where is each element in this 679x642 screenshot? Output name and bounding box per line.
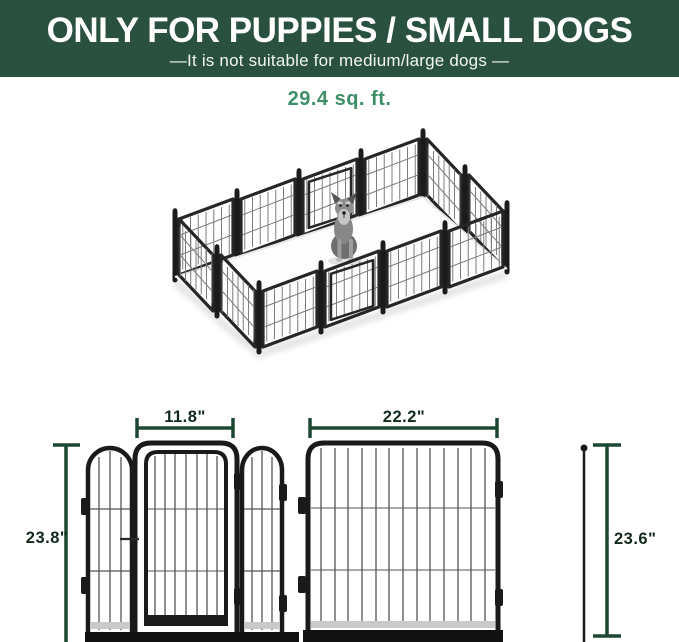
- door-height-dimension: 23.8": [26, 445, 80, 642]
- playpen-illustration: [130, 115, 570, 395]
- door-panel: [120, 443, 242, 642]
- base-bar: [303, 630, 503, 642]
- door-width-label: 11.8": [164, 408, 206, 426]
- dog-nose: [342, 211, 345, 214]
- panel-height-dimension: 23.6": [593, 445, 656, 636]
- narrow-panel-right: [242, 448, 287, 642]
- connector-tab: [81, 498, 89, 515]
- dimension-diagram: 11.8" 23.8": [0, 400, 679, 642]
- narrow-panel-left: [81, 448, 132, 642]
- connector-tab: [279, 484, 287, 501]
- panel-section-diagram: 22.2": [298, 408, 656, 642]
- door-section-diagram: 11.8" 23.8": [26, 408, 299, 642]
- door-width-dimension: 11.8": [137, 408, 233, 438]
- banner-title: ONLY FOR PUPPIES / SMALL DOGS: [0, 0, 679, 50]
- connector-tab: [81, 577, 89, 594]
- banner-subtitle: —It is not suitable for medium/large dog…: [0, 50, 679, 71]
- panel-width-label: 22.2": [383, 408, 425, 426]
- base-bar: [85, 632, 299, 642]
- area-size-label: 29.4 sq. ft.: [0, 88, 679, 111]
- panel-side-view: [581, 445, 588, 642]
- connector-tab: [298, 497, 306, 514]
- wide-panel: [298, 443, 503, 642]
- panel-height-label: 23.6": [614, 530, 656, 548]
- header-banner: ONLY FOR PUPPIES / SMALL DOGS —It is not…: [0, 0, 679, 77]
- product-infographic: ONLY FOR PUPPIES / SMALL DOGS —It is not…: [0, 0, 679, 642]
- door-height-label: 23.8": [26, 529, 68, 547]
- connector-tab: [279, 595, 287, 612]
- connector-tab: [298, 576, 306, 593]
- connector-tab: [495, 481, 503, 498]
- connector-tab: [495, 589, 503, 606]
- panel-width-dimension: 22.2": [310, 408, 497, 438]
